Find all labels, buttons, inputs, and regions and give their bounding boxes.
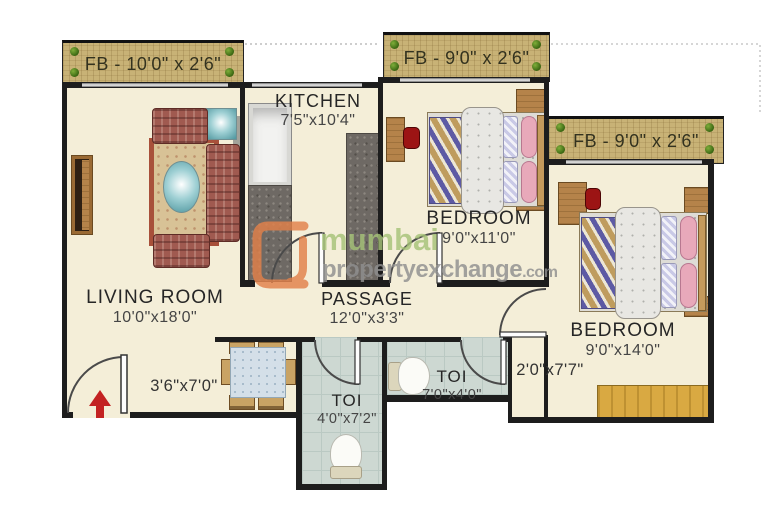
toilet1-label: TOI 4'0"x7'2" xyxy=(317,391,377,428)
shrub-icon xyxy=(70,47,79,56)
double-bed-icon xyxy=(579,212,707,312)
wall xyxy=(382,337,387,490)
wall xyxy=(708,159,714,423)
chair-icon xyxy=(403,127,420,149)
shrub-icon xyxy=(225,68,234,77)
chair-icon xyxy=(585,188,601,210)
passage-label: PASSAGE 12'0"x3'3" xyxy=(321,289,413,329)
flower-bed-1: FB - 10'0" x 2'6" xyxy=(62,40,244,87)
shrub-icon xyxy=(532,62,541,71)
room-dims: 7'5"x10'4" xyxy=(275,112,361,131)
flower-bed-3-label: FB - 9'0" x 2'6" xyxy=(573,131,699,152)
kitchen-counter-icon xyxy=(346,133,380,282)
room-name: TOI xyxy=(317,391,377,411)
coffee-table-icon xyxy=(163,161,200,213)
wall xyxy=(298,484,386,490)
wardrobe-icon xyxy=(597,385,712,418)
shrub-icon xyxy=(390,62,399,71)
wall xyxy=(62,82,67,418)
window-icon xyxy=(252,83,362,87)
shrub-icon xyxy=(705,145,714,154)
room-name: PASSAGE xyxy=(321,289,413,310)
dotted-boundary xyxy=(551,44,760,114)
shrub-icon xyxy=(556,145,565,154)
wall xyxy=(130,412,302,418)
flower-bed-1-label: FB - 10'0" x 2'6" xyxy=(85,54,221,75)
kitchen-label: KITCHEN 7'5"x10'4" xyxy=(275,91,361,131)
flower-bed-2-label: FB - 9'0" x 2'6" xyxy=(404,48,530,69)
blanket xyxy=(581,217,620,309)
wall xyxy=(378,77,383,287)
side-table-icon xyxy=(205,108,237,140)
window-icon xyxy=(400,78,530,82)
wall xyxy=(296,337,302,490)
room-dims: 4'0"x7'2" xyxy=(317,411,377,428)
room-name: BEDROOM xyxy=(426,208,531,230)
blanket xyxy=(429,117,465,205)
toilet-icon xyxy=(329,434,363,478)
dimension-text: 2'0"x7'7" xyxy=(516,361,583,380)
room-name: BEDROOM xyxy=(570,320,675,342)
living-room-label: LIVING ROOM 10'0"x18'0" xyxy=(86,287,224,328)
room-name: LIVING ROOM xyxy=(86,287,224,309)
nook-dimension-label: 3'6"x7'0" xyxy=(150,377,217,396)
sofa-set-icon xyxy=(152,108,208,144)
kitchen-counter-icon xyxy=(248,185,292,282)
room-dims: 9'0"x11'0" xyxy=(426,230,531,249)
dimension-text: 3'6"x7'0" xyxy=(150,377,217,396)
wall xyxy=(240,82,245,287)
sofa-set-icon xyxy=(206,144,240,242)
floor-plan: FB - 10'0" x 2'6" FB - 9'0" x 2'6" FB - … xyxy=(0,0,781,512)
shrub-icon xyxy=(70,68,79,77)
double-bed-icon xyxy=(427,112,546,207)
duvet xyxy=(615,207,661,319)
room-name: TOI xyxy=(422,367,482,387)
headboard xyxy=(698,215,706,311)
wall xyxy=(437,280,544,287)
corridor-dimension-label: 2'0"x7'7" xyxy=(516,361,583,380)
pillows xyxy=(661,216,698,308)
room-dims: 12'0"x3'3" xyxy=(321,310,413,329)
shrub-icon xyxy=(556,123,565,132)
sofa-set-icon xyxy=(153,234,210,268)
shrub-icon xyxy=(532,40,541,49)
wall xyxy=(544,77,549,287)
wall xyxy=(508,337,512,423)
shrub-icon xyxy=(705,123,714,132)
room-dims: 9'0"x14'0" xyxy=(570,342,675,361)
flower-bed-2: FB - 9'0" x 2'6" xyxy=(383,32,550,82)
duvet xyxy=(461,107,504,213)
room-dims: 10'0"x18'0" xyxy=(86,309,224,328)
window-icon xyxy=(566,160,702,164)
dining-table-icon xyxy=(230,347,286,398)
shrub-icon xyxy=(390,40,399,49)
tv-unit-icon xyxy=(71,155,93,235)
bedroom2-label: BEDROOM 9'0"x14'0" xyxy=(570,320,675,361)
window-icon xyxy=(82,83,228,87)
room-name: KITCHEN xyxy=(275,91,361,112)
room-dims: 7'0"x4'0" xyxy=(422,387,482,404)
pillows xyxy=(503,116,537,203)
wall xyxy=(357,337,461,342)
flower-bed-3: FB - 9'0" x 2'6" xyxy=(548,116,724,164)
bedroom1-label: BEDROOM 9'0"x11'0" xyxy=(426,208,531,249)
toilet2-label: TOI 7'0"x4'0" xyxy=(422,367,482,404)
shrub-icon xyxy=(225,47,234,56)
wall xyxy=(508,417,714,423)
